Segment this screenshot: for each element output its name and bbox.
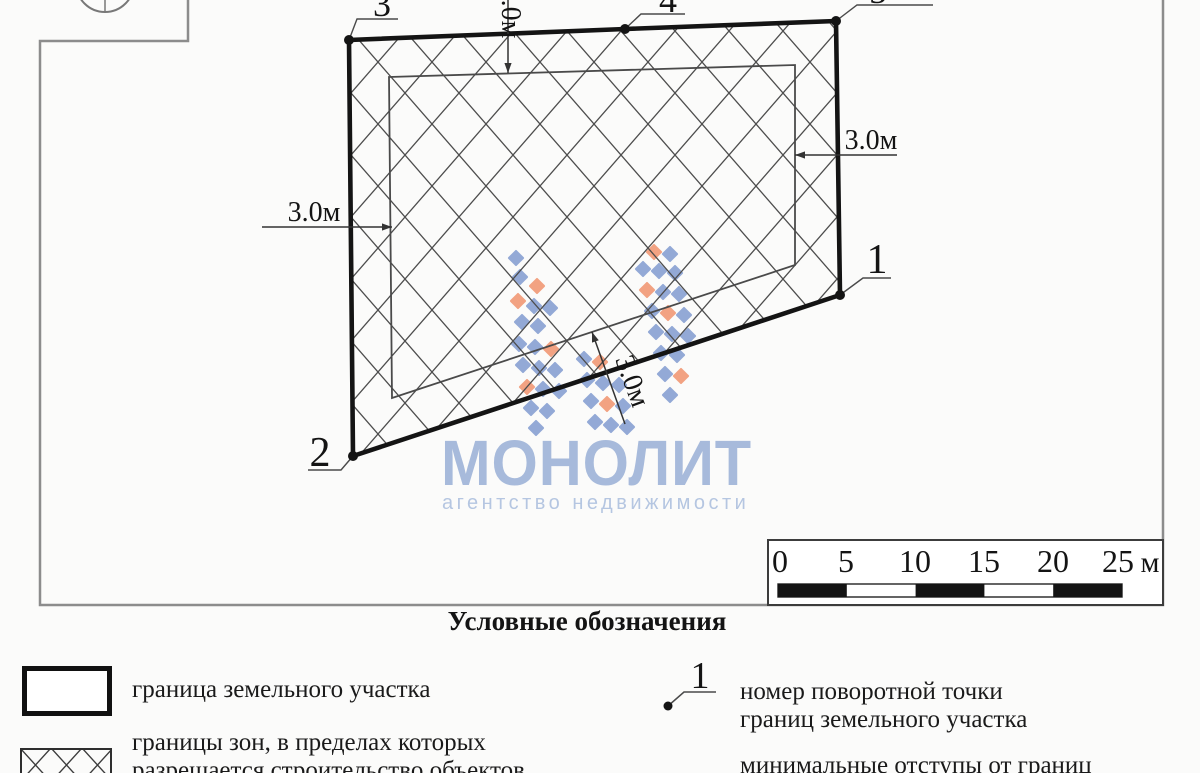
scale-bar-tick-label-0: 0 [772, 543, 788, 579]
parcel-boundary [349, 21, 840, 456]
legend-item-buildable-zone-line1: границы зон, в пределах которых [132, 729, 525, 757]
scanned-site-plan-page: МОНОЛИТ агентство недвижимости 123453.0м… [0, 0, 1200, 773]
legend-item-vertex-point-line2: границ земельного участка [740, 706, 1027, 734]
setback-dimension-label-0: 3.0м [495, 0, 526, 39]
scale-bar-filled-segment [778, 584, 847, 597]
legend-title: Условные обозначения [0, 606, 1174, 637]
setback-dimension-label-1: 3.0м [845, 125, 898, 156]
scale-bar-tick-label-5: 5 [838, 543, 854, 579]
vertex-label-3: 3 [373, 0, 391, 24]
scale-bar-tick-label-10: 10 [899, 543, 931, 579]
vertex-label-5: 5 [869, 0, 887, 11]
legend-item-buildable-zone: границы зон, в пределах которых разрешае… [132, 729, 525, 773]
legend-item-min-setbacks: минимальные отступы от границ [740, 752, 1092, 773]
legend-item-vertex-point: номер поворотной точки границ земельного… [740, 678, 1027, 734]
scale-bar-filled-segment [1053, 584, 1122, 597]
vertex-point-5 [831, 16, 841, 26]
vertex-point-1 [835, 290, 845, 300]
legend-symbol-buildable-zone-icon [20, 748, 112, 773]
vertex-label-2: 2 [310, 430, 331, 476]
legend-symbol-vertex-point-icon: 1 [652, 650, 730, 712]
legend-symbol-vertex-number: 1 [691, 655, 710, 697]
vertex-point-3 [344, 35, 354, 45]
scale-bar-tick-label-20: 20 [1037, 543, 1069, 579]
legend-item-parcel-boundary: граница земельного участка [132, 676, 430, 704]
scale-bar-unit-label: м [1141, 546, 1160, 579]
setback-dimension-label-2: 3.0м [288, 197, 341, 228]
legend-item-vertex-point-line1: номер поворотной точки [740, 678, 1027, 706]
scale-bar-tick-label-25: 25 [1102, 543, 1134, 579]
vertex-point-4 [620, 24, 630, 34]
legend-item-buildable-zone-line2: разрешается строительство объектов [132, 757, 525, 773]
scale-bar-filled-segment [916, 584, 985, 597]
vertex-label-1: 1 [867, 237, 888, 283]
vertex-label-4: 4 [659, 0, 677, 20]
vertex-point-2 [348, 451, 358, 461]
site-plan-drawing: 123453.0м3.0м3.0м3.0м0510152025м [0, 0, 1200, 610]
legend-symbol-parcel-boundary-icon [22, 666, 112, 716]
scale-bar-tick-label-15: 15 [968, 543, 1000, 579]
